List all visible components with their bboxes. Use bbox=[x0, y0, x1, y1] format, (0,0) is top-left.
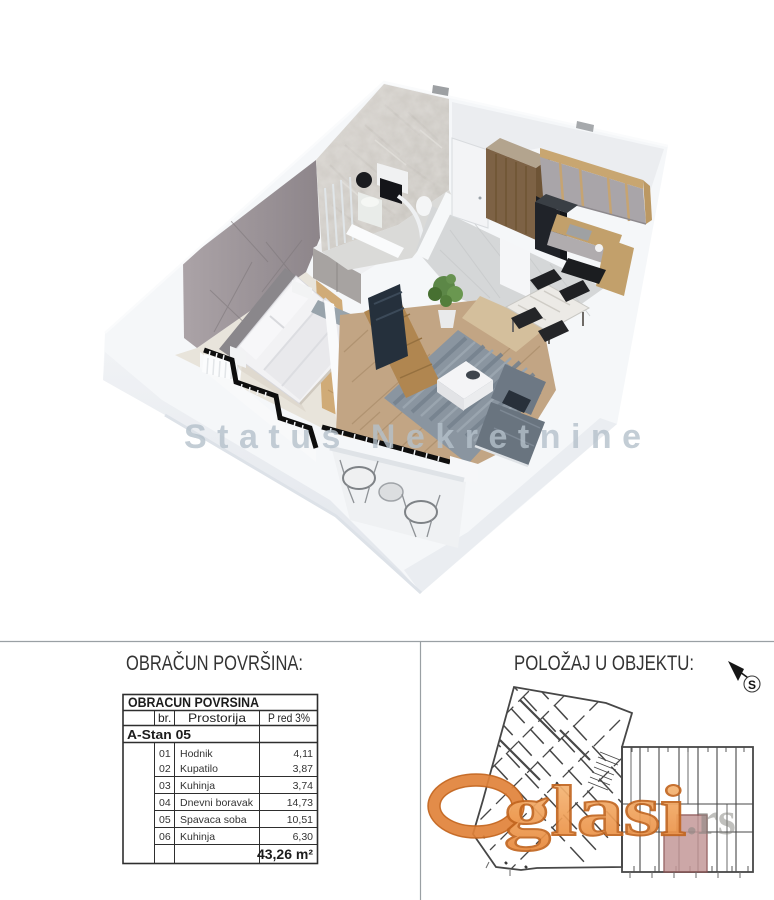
svg-text:43,26 m²: 43,26 m² bbox=[257, 846, 313, 862]
svg-text:05: 05 bbox=[159, 814, 171, 826]
svg-text:4,11: 4,11 bbox=[293, 748, 313, 760]
svg-text:06: 06 bbox=[159, 831, 171, 843]
svg-text:Prostorija: Prostorija bbox=[188, 711, 246, 725]
svg-text:S: S bbox=[748, 678, 756, 692]
svg-text:03: 03 bbox=[159, 780, 171, 792]
svg-text:04: 04 bbox=[159, 797, 171, 809]
svg-text:02: 02 bbox=[159, 763, 171, 775]
svg-text:OBRACUN POVRSINA: OBRACUN POVRSINA bbox=[128, 695, 259, 710]
svg-text:01: 01 bbox=[159, 748, 171, 760]
svg-text:A-Stan 05: A-Stan 05 bbox=[127, 728, 191, 742]
svg-text:10,51: 10,51 bbox=[287, 814, 313, 826]
svg-text:OBRAČUN POVRŠINA:: OBRAČUN POVRŠINA: bbox=[126, 652, 303, 675]
svg-text:Hodnik: Hodnik bbox=[180, 748, 213, 760]
svg-text:POLOŽAJ U OBJEKTU:: POLOŽAJ U OBJEKTU: bbox=[514, 652, 694, 675]
svg-text:6,30: 6,30 bbox=[293, 831, 314, 843]
svg-text:Kuhinja: Kuhinja bbox=[180, 780, 215, 792]
svg-text:14,73: 14,73 bbox=[287, 797, 313, 809]
svg-text:Status Nekretnine: Status Nekretnine bbox=[184, 418, 652, 456]
svg-text:Kupatilo: Kupatilo bbox=[180, 763, 218, 775]
svg-text:.rs: .rs bbox=[686, 793, 736, 844]
svg-text:Dnevni boravak: Dnevni boravak bbox=[180, 797, 254, 809]
svg-text:3,87: 3,87 bbox=[293, 763, 314, 775]
svg-text:glasi: glasi bbox=[504, 772, 686, 851]
svg-text:br.: br. bbox=[158, 711, 171, 725]
svg-text:Spavaca soba: Spavaca soba bbox=[180, 814, 247, 826]
svg-text:3,74: 3,74 bbox=[293, 780, 314, 792]
svg-text:Kuhinja: Kuhinja bbox=[180, 831, 215, 843]
svg-text:P red 3%: P red 3% bbox=[268, 711, 310, 725]
